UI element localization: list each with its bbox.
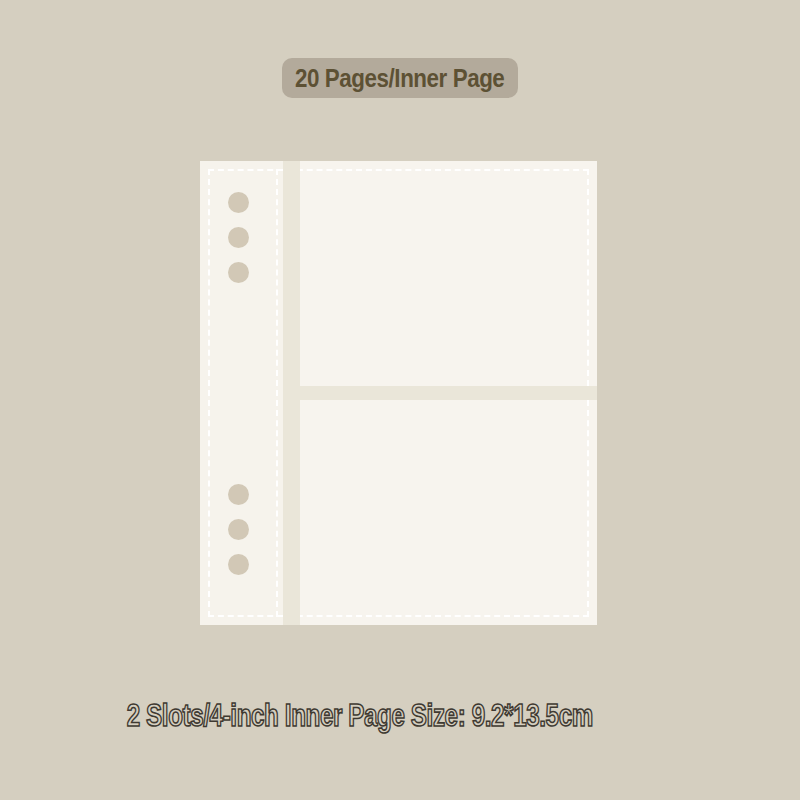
binder-hole <box>228 554 249 575</box>
binding-strip-stitch-line <box>276 169 278 617</box>
size-caption: 2 Slots/4-inch Inner Page Size: 9.2*13.5… <box>0 698 800 734</box>
binder-hole <box>228 262 249 283</box>
product-image-background: 20 Pages/Inner Page 2 Slots/4-inch Inner… <box>0 0 800 800</box>
binder-hole <box>228 519 249 540</box>
inner-page-illustration <box>200 161 597 625</box>
binder-hole <box>228 484 249 505</box>
pages-count-badge: 20 Pages/Inner Page <box>282 58 518 98</box>
size-caption-text: 2 Slots/4-inch Inner Page Size: 9.2*13.5… <box>127 698 593 734</box>
pages-count-badge-label: 20 Pages/Inner Page <box>295 63 504 94</box>
horizontal-divider-band <box>300 386 597 400</box>
vertical-divider-band <box>283 161 300 625</box>
binder-hole <box>228 227 249 248</box>
binder-hole <box>228 192 249 213</box>
